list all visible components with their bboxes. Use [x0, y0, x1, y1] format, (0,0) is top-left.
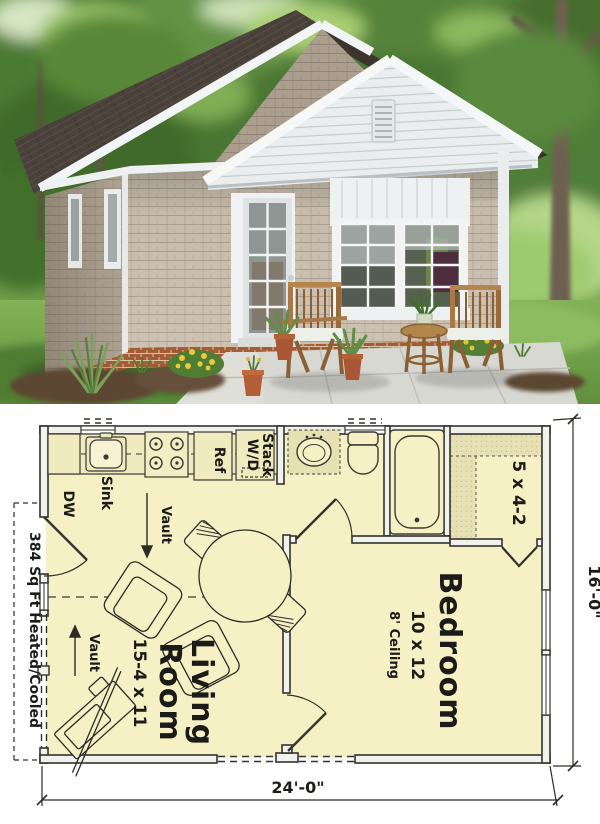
label-width-dimension: 24'-0" [271, 778, 324, 797]
label-stack-wd-2: W/D [244, 439, 260, 471]
floor-plan: DW Sink Ref Stack W/D Vault Vault Living… [0, 404, 600, 824]
front-windows [330, 178, 470, 320]
label-vault-kitchen: Vault [158, 506, 173, 544]
dishwasher [48, 434, 80, 474]
label-bedroom-ceiling: 8' Ceiling [386, 611, 401, 679]
label-bedroom-size: 10 x 12 [407, 610, 427, 680]
label-refrigerator: Ref [211, 447, 227, 474]
label-square-footage: 384 Sq Ft Heated/Cooled [26, 532, 42, 728]
kitchen [48, 430, 277, 480]
label-closet-size: 5 x 4-2 [508, 460, 528, 525]
label-living-2: Room [152, 642, 187, 742]
kitchen-sink [86, 433, 126, 471]
label-dishwasher: DW [60, 490, 76, 517]
label-living-1: Living [184, 638, 219, 746]
bathtub [390, 430, 444, 534]
label-vault-living: Vault [86, 634, 101, 672]
toilet [348, 432, 378, 474]
louver-vent [372, 100, 395, 142]
house-plan-sheet: DW Sink Ref Stack W/D Vault Vault Living… [0, 0, 600, 824]
label-height-dimension: 16'-0" [585, 565, 600, 618]
label-sink: Sink [98, 476, 114, 511]
label-stack-wd-1: Stack [259, 433, 275, 478]
exterior-rendering [0, 0, 600, 404]
label-living-size: 15-4 x 11 [129, 638, 149, 727]
stove [145, 432, 188, 477]
round-table [199, 530, 291, 622]
label-bedroom: Bedroom [432, 572, 467, 731]
door-handle [288, 275, 294, 281]
